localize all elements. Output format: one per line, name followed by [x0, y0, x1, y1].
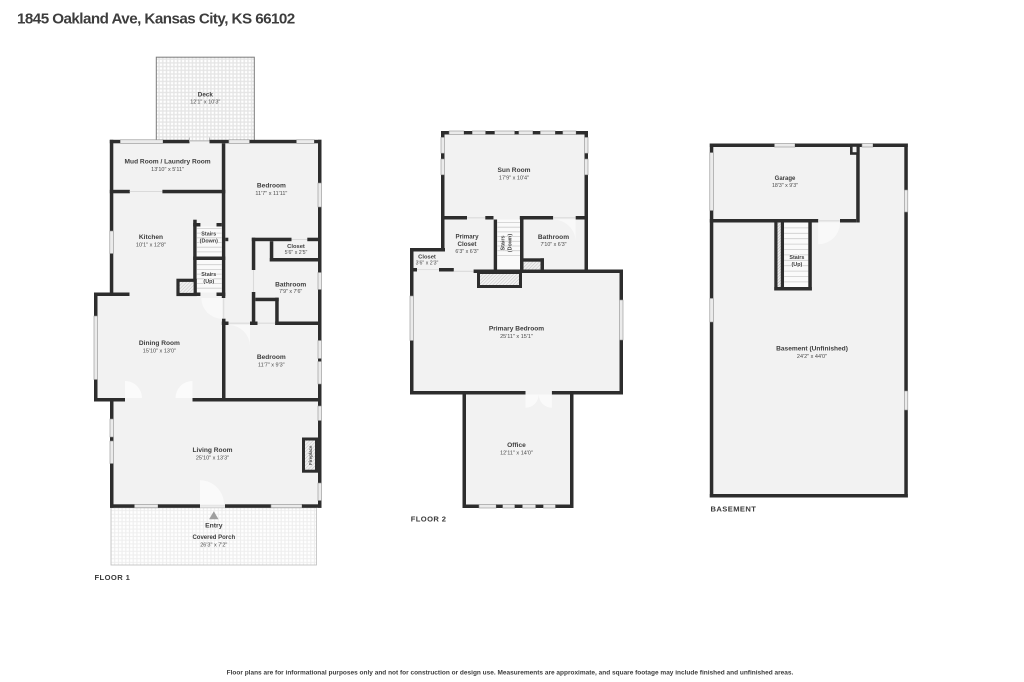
svg-text:10'1" x 12'8": 10'1" x 12'8"	[136, 243, 166, 249]
svg-text:25'11" x 15'1": 25'11" x 15'1"	[500, 334, 533, 340]
svg-text:Floor plans are for informatio: Floor plans are for informational purpos…	[227, 670, 794, 677]
svg-text:25'10" x 13'3": 25'10" x 13'3"	[196, 456, 229, 462]
svg-text:Dining Room: Dining Room	[139, 340, 180, 347]
svg-text:Living Room: Living Room	[193, 447, 233, 454]
svg-text:Office: Office	[507, 442, 526, 449]
svg-text:13'10" x 5'11": 13'10" x 5'11"	[151, 167, 184, 173]
svg-text:11'7" x 9'3": 11'7" x 9'3"	[258, 362, 285, 368]
svg-text:Bedroom: Bedroom	[257, 354, 286, 361]
svg-text:Closet: Closet	[458, 241, 477, 248]
svg-text:Sun Room: Sun Room	[498, 167, 531, 174]
svg-text:6'3" x 6'3": 6'3" x 6'3"	[455, 249, 478, 255]
svg-text:(Down): (Down)	[508, 234, 514, 252]
svg-text:24'2" x 44'0": 24'2" x 44'0"	[797, 354, 827, 360]
svg-text:Mud Room / Laundry Room: Mud Room / Laundry Room	[125, 159, 211, 166]
svg-text:Fireplace: Fireplace	[308, 445, 313, 465]
svg-text:BASEMENT: BASEMENT	[711, 505, 757, 514]
svg-text:Stairs: Stairs	[789, 255, 804, 261]
svg-text:Closet: Closet	[418, 254, 436, 260]
svg-text:Bedroom: Bedroom	[257, 183, 286, 190]
svg-text:12'1" x 10'3": 12'1" x 10'3"	[190, 100, 220, 106]
svg-text:18'3" x 9'3": 18'3" x 9'3"	[772, 183, 798, 189]
svg-text:Closet: Closet	[287, 244, 305, 250]
svg-text:Bathroom: Bathroom	[538, 234, 569, 241]
svg-text:12'11" x 14'0": 12'11" x 14'0"	[500, 450, 533, 456]
svg-text:Stairs: Stairs	[501, 236, 507, 251]
svg-text:7'9" x 7'6": 7'9" x 7'6"	[279, 289, 302, 295]
svg-text:7'10" x 6'3": 7'10" x 6'3"	[540, 242, 566, 248]
svg-text:FLOOR 1: FLOOR 1	[95, 573, 131, 582]
svg-text:Primary Bedroom: Primary Bedroom	[489, 326, 544, 333]
svg-text:3'6" x 2'3": 3'6" x 2'3"	[416, 261, 439, 267]
svg-text:Deck: Deck	[198, 92, 214, 99]
svg-text:5'6" x 2'5": 5'6" x 2'5"	[285, 250, 308, 256]
svg-text:Garage: Garage	[775, 176, 796, 182]
svg-text:Primary: Primary	[455, 234, 479, 241]
svg-text:26'3" x 7'2": 26'3" x 7'2"	[200, 542, 227, 548]
svg-text:Stairs: Stairs	[201, 232, 216, 238]
svg-text:17'9" x 10'4": 17'9" x 10'4"	[499, 175, 529, 181]
svg-text:(Down): (Down)	[200, 239, 218, 245]
svg-text:Bathroom: Bathroom	[275, 281, 306, 288]
svg-text:(Up): (Up)	[203, 279, 214, 285]
svg-text:Covered Porch: Covered Porch	[192, 535, 235, 541]
svg-text:1845 Oakland Ave, Kansas City,: 1845 Oakland Ave, Kansas City, KS 66102	[17, 11, 295, 28]
svg-text:15'10" x 13'0": 15'10" x 13'0"	[143, 349, 176, 355]
svg-text:Stairs: Stairs	[201, 272, 216, 278]
svg-text:Kitchen: Kitchen	[139, 234, 163, 241]
svg-text:Basement (Unfinished): Basement (Unfinished)	[776, 346, 848, 353]
svg-text:(Up): (Up)	[792, 262, 803, 268]
svg-text:Entry: Entry	[205, 522, 223, 529]
svg-text:FLOOR 2: FLOOR 2	[411, 514, 447, 523]
svg-text:11'7" x 11'11": 11'7" x 11'11"	[255, 191, 287, 197]
